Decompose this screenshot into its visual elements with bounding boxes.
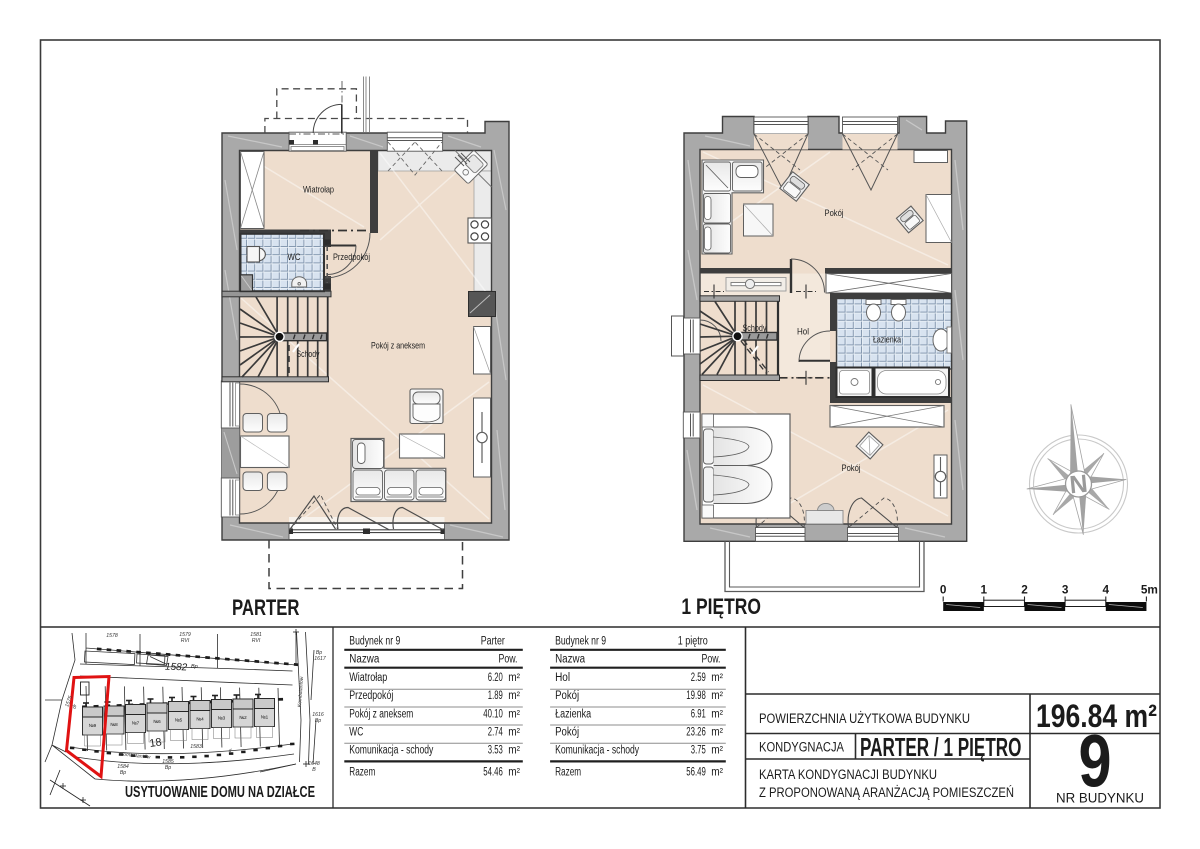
svg-text:№6: №6 <box>153 719 161 724</box>
svg-text:Parter: Parter <box>481 636 505 648</box>
svg-text:Hol: Hol <box>797 327 809 337</box>
svg-text:Bp: Bp <box>120 770 126 776</box>
svg-text:Z PROPONOWANĄ ARANŻACJĄ POMIES: Z PROPONOWANĄ ARANŻACJĄ POMIESZCZEŃ <box>759 783 1014 801</box>
svg-text:m²: m² <box>508 727 520 739</box>
svg-text:USYTUOWANIE DOMU NA DZIAŁCE: USYTUOWANIE DOMU NA DZIAŁCE <box>125 784 315 801</box>
svg-text:N: N <box>1068 470 1089 500</box>
svg-text:Hol: Hol <box>555 672 570 684</box>
svg-text:Schody: Schody <box>297 349 320 359</box>
svg-text:№9: №9 <box>89 723 97 728</box>
svg-text:Bp: Bp <box>191 664 198 670</box>
svg-text:m²: m² <box>711 745 723 757</box>
svg-text:m²: m² <box>711 727 723 739</box>
svg-text:1: 1 <box>981 583 988 597</box>
svg-text:Nazwa: Nazwa <box>349 654 380 666</box>
svg-text:m²: m² <box>508 745 520 757</box>
svg-text:KARTA KONDYGNACJI BUDYNKU: KARTA KONDYGNACJI BUDYNKU <box>759 767 937 783</box>
svg-text:6.91: 6.91 <box>691 708 706 720</box>
svg-text:№7: №7 <box>132 721 140 726</box>
svg-text:Pow.: Pow. <box>702 654 721 666</box>
svg-text:2.59: 2.59 <box>691 672 706 684</box>
svg-text:1.89: 1.89 <box>488 690 503 702</box>
svg-text:5m: 5m <box>1141 583 1158 597</box>
svg-text:3.53: 3.53 <box>488 745 503 757</box>
svg-text:Razem: Razem <box>555 767 581 779</box>
svg-text:54.46: 54.46 <box>483 767 503 779</box>
svg-text:B: B <box>312 767 316 773</box>
svg-text:m²: m² <box>711 672 723 684</box>
svg-text:1 piętro: 1 piętro <box>678 636 708 648</box>
svg-text:m²: m² <box>711 767 723 779</box>
svg-text:3.75: 3.75 <box>691 745 706 757</box>
svg-text:m²: m² <box>508 690 520 702</box>
svg-text:Przedpokój: Przedpokój <box>333 252 370 262</box>
svg-text:№2: №2 <box>239 715 247 720</box>
svg-text:KONDYGNACJA: KONDYGNACJA <box>759 740 844 756</box>
svg-text:Komunikacja - schody: Komunikacja - schody <box>555 745 639 757</box>
svg-text:RVI: RVI <box>181 638 190 644</box>
svg-text:Pokój: Pokój <box>842 462 861 473</box>
svg-text:POWIERZCHNIA UŻYTKOWA BUDYNKU: POWIERZCHNIA UŻYTKOWA BUDYNKU <box>759 709 970 727</box>
svg-text:PARTER: PARTER <box>232 595 300 620</box>
svg-text:Łazienka: Łazienka <box>873 335 902 345</box>
svg-text:18: 18 <box>149 736 163 750</box>
svg-text:Bp: Bp <box>165 765 171 771</box>
svg-text:WC: WC <box>349 727 363 739</box>
svg-text:Komunikacja - schody: Komunikacja - schody <box>349 745 433 757</box>
svg-text:56.49: 56.49 <box>686 767 706 779</box>
svg-text:1 PIĘTRO: 1 PIĘTRO <box>681 594 761 619</box>
svg-text:d: d <box>229 748 232 754</box>
svg-text:№1: №1 <box>261 715 269 720</box>
svg-text:Budynek nr 9: Budynek nr 9 <box>555 636 606 648</box>
svg-text:Pow.: Pow. <box>499 654 518 666</box>
svg-text:1583: 1583 <box>190 744 202 750</box>
svg-text:19.98: 19.98 <box>686 690 706 702</box>
svg-text:№8: №8 <box>110 722 118 727</box>
svg-text:2: 2 <box>1021 583 1028 597</box>
svg-text:m²: m² <box>508 767 520 779</box>
svg-text:4: 4 <box>1103 583 1110 597</box>
svg-text:№3: №3 <box>218 716 226 721</box>
svg-text:Pokój: Pokój <box>555 727 579 739</box>
svg-text:Nazwa: Nazwa <box>555 654 586 666</box>
svg-text:№5: №5 <box>175 718 183 723</box>
svg-text:Pokój z aneksem: Pokój z aneksem <box>349 708 413 720</box>
svg-text:m²: m² <box>711 690 723 702</box>
svg-text:Łazienka: Łazienka <box>555 708 591 720</box>
svg-text:Schody: Schody <box>743 323 767 333</box>
svg-text:WC: WC <box>288 252 301 262</box>
svg-text:m²: m² <box>508 708 520 720</box>
svg-text:PARTER / 1 PIĘTRO: PARTER / 1 PIĘTRO <box>860 732 1022 762</box>
svg-text:1582: 1582 <box>165 662 188 674</box>
svg-text:Wiatrołap: Wiatrołap <box>349 672 387 684</box>
svg-text:0: 0 <box>940 583 947 597</box>
svg-text:RVI: RVI <box>252 638 261 644</box>
svg-text:Budynek nr 9: Budynek nr 9 <box>349 636 400 648</box>
svg-text:40.10: 40.10 <box>483 708 503 720</box>
svg-text:1578: 1578 <box>106 633 118 639</box>
svg-text:Pokój: Pokój <box>555 690 579 702</box>
svg-text:Bp: Bp <box>315 718 321 724</box>
svg-text:23.26: 23.26 <box>686 727 706 739</box>
svg-text:NR BUDYNKU: NR BUDYNKU <box>1056 790 1144 806</box>
svg-text:2.74: 2.74 <box>488 727 503 739</box>
svg-text:Razem: Razem <box>349 767 375 779</box>
svg-text:m²: m² <box>711 708 723 720</box>
svg-text:m²: m² <box>508 672 520 684</box>
svg-text:Pokój: Pokój <box>825 207 844 218</box>
svg-text:Wiatrołap: Wiatrołap <box>303 185 334 195</box>
svg-text:№4: №4 <box>196 717 204 722</box>
svg-text:3: 3 <box>1062 583 1069 597</box>
svg-text:1617: 1617 <box>314 656 327 662</box>
svg-text:Pokój z aneksem: Pokój z aneksem <box>371 340 425 351</box>
svg-text:6.20: 6.20 <box>488 672 503 684</box>
svg-text:Przedpokój: Przedpokój <box>349 690 393 702</box>
